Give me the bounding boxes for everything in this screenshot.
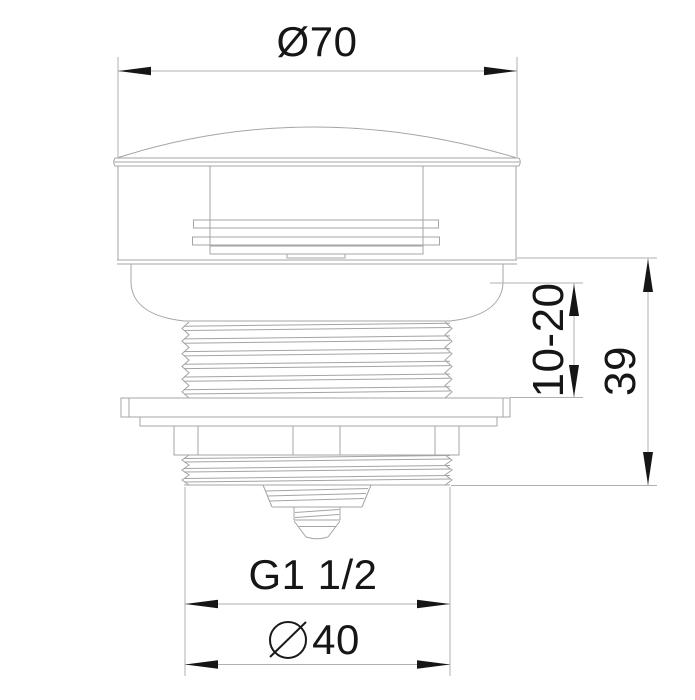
body — [117, 166, 517, 283]
lower-thread — [182, 455, 452, 485]
part-outline — [114, 127, 521, 539]
upper-thread — [182, 321, 452, 398]
flange-flare — [131, 283, 503, 321]
cap — [114, 127, 521, 166]
technical-drawing-canvas: Ø70 10-20 39 G1 1/2 40 — [0, 0, 695, 700]
height-label: 39 — [599, 346, 643, 396]
diameter-symbol — [270, 622, 306, 658]
thread-size-label: G1 1/2 — [248, 554, 377, 596]
mount-thickness-label: 10-20 — [527, 282, 571, 397]
outlet-diameter-label: 40 — [312, 619, 360, 661]
cap-diameter-label: Ø70 — [277, 21, 358, 63]
backnut-washer — [121, 398, 510, 455]
outlet-tip — [263, 485, 371, 539]
